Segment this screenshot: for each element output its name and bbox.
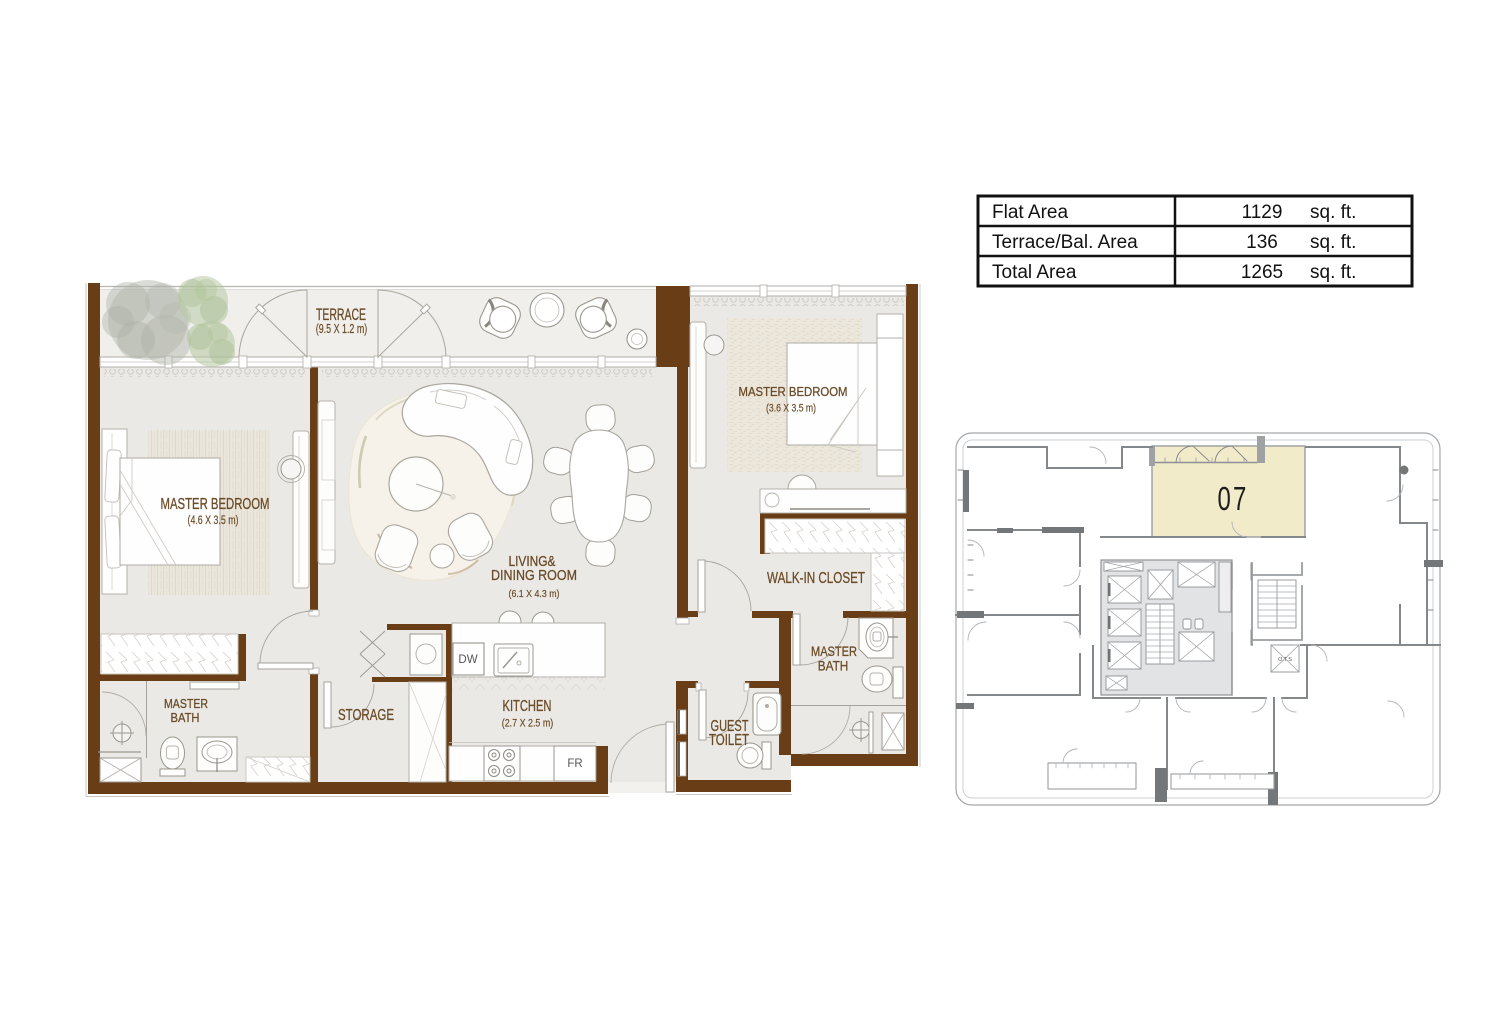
svg-text:sq. ft.: sq. ft. xyxy=(1310,262,1356,283)
svg-text:sq. ft.: sq. ft. xyxy=(1310,232,1356,253)
svg-text:DINING ROOM: DINING ROOM xyxy=(491,568,577,584)
svg-text:BATH: BATH xyxy=(818,659,849,674)
svg-text:O.T.S: O.T.S xyxy=(1278,657,1292,663)
svg-text:STORAGE: STORAGE xyxy=(338,707,394,724)
svg-text:Flat Area: Flat Area xyxy=(992,202,1068,223)
svg-text:1265: 1265 xyxy=(1241,262,1283,283)
svg-text:Terrace/Bal. Area: Terrace/Bal. Area xyxy=(992,232,1138,253)
svg-text:(6.1 X 4.3 m): (6.1 X 4.3 m) xyxy=(509,588,560,600)
svg-text:WALK-IN CLOSET: WALK-IN CLOSET xyxy=(767,570,865,587)
svg-text:(4.6 X 3.5 m): (4.6 X 3.5 m) xyxy=(188,515,239,527)
svg-text:(9.5 X 1.2 m): (9.5 X 1.2 m) xyxy=(316,322,368,336)
svg-text:(3.6 X 3.5 m): (3.6 X 3.5 m) xyxy=(766,403,816,415)
svg-text:TOILET: TOILET xyxy=(709,732,749,749)
svg-text:sq. ft.: sq. ft. xyxy=(1310,202,1356,223)
svg-text:136: 136 xyxy=(1246,232,1278,253)
svg-text:(2.7 X 2.5 m): (2.7 X 2.5 m) xyxy=(502,718,554,730)
svg-text:MASTER: MASTER xyxy=(164,696,208,711)
svg-text:1129: 1129 xyxy=(1242,202,1283,223)
svg-text:FR: FR xyxy=(567,758,582,770)
svg-text:07: 07 xyxy=(1218,480,1249,517)
svg-text:KITCHEN: KITCHEN xyxy=(503,698,552,715)
svg-text:DW: DW xyxy=(458,654,477,666)
svg-text:MASTER BEDROOM: MASTER BEDROOM xyxy=(739,384,848,399)
svg-text:Total Area: Total Area xyxy=(992,262,1077,283)
svg-text:MASTER: MASTER xyxy=(811,644,857,659)
svg-text:MASTER BEDROOM: MASTER BEDROOM xyxy=(161,496,270,513)
svg-text:BATH: BATH xyxy=(171,710,200,725)
